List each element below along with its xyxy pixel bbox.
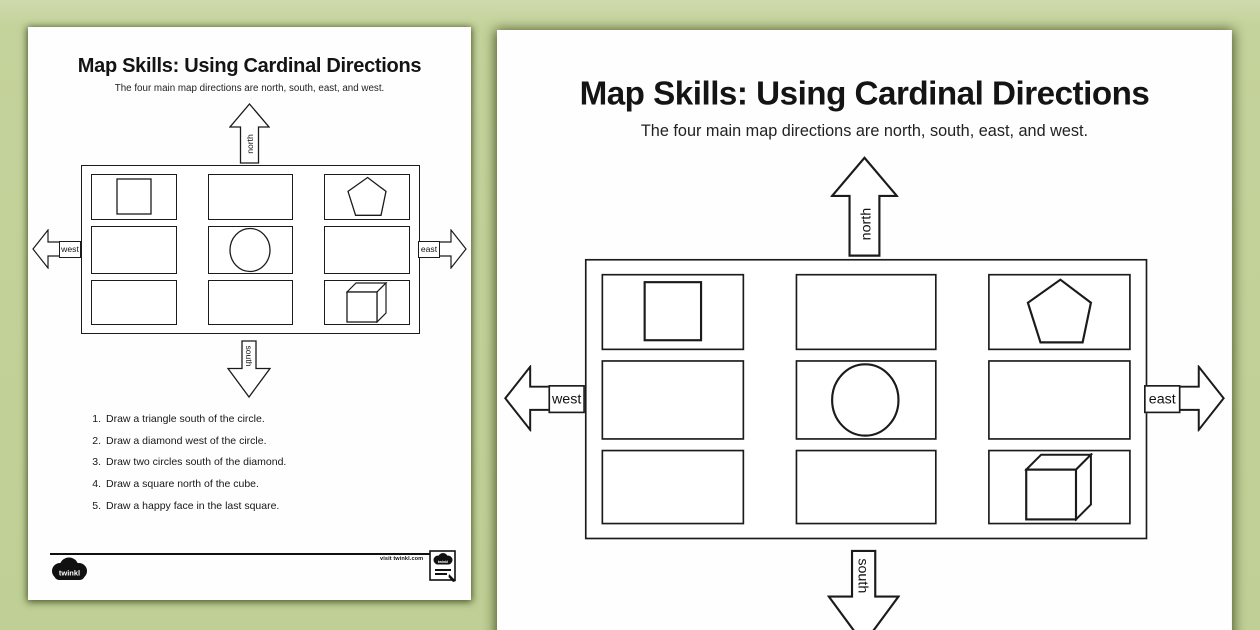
north-arrow: north	[830, 156, 898, 257]
south-arrow: south	[827, 549, 900, 630]
instruction-item-3: 3. Draw two circles south of the diamond…	[88, 456, 438, 469]
footer-divider	[50, 553, 449, 555]
desktop-background: Map Skills: Using Cardinal Directions Th…	[0, 0, 1260, 630]
svg-text:twinkl: twinkl	[438, 560, 448, 564]
instruction-item-2: 2. Draw a diamond west of the circle.	[88, 435, 438, 448]
east-arrow-label: east	[418, 241, 440, 258]
page-subtitle: The four main map directions are north, …	[28, 83, 471, 94]
south-arrow: south	[227, 340, 271, 398]
instruction-number: 5.	[88, 500, 101, 513]
twinkl-quality-badge-icon: twinkl	[429, 550, 458, 584]
cube-shape-icon	[1025, 453, 1095, 521]
svg-text:twinkl: twinkl	[59, 569, 80, 578]
map-cell-r2c1	[602, 359, 744, 439]
map-cell-r3c2	[795, 449, 937, 524]
map-grid	[585, 259, 1147, 539]
cube-shape-icon	[346, 282, 388, 323]
map-cell-r2c1	[91, 226, 177, 274]
east-arrow-label: east	[1144, 384, 1180, 412]
map-cell-r3c2	[208, 280, 294, 326]
north-arrow-label: north	[245, 135, 255, 155]
instruction-item-1: 1. Draw a triangle south of the circle.	[88, 413, 438, 426]
map-cell-r3c1	[602, 449, 744, 524]
instructions-list: 1. Draw a triangle south of the circle. …	[88, 413, 438, 522]
map-cell-r3c3	[324, 280, 410, 326]
map-cell-r1c3	[989, 274, 1131, 349]
west-arrow-label: west	[548, 384, 584, 412]
visit-twinkl-link: visit twinkl.com	[380, 556, 423, 562]
map-cell-r1c2	[208, 174, 294, 220]
map-cell-r2c3	[324, 226, 410, 274]
instruction-text: Draw two circles south of the diamond.	[106, 456, 286, 469]
west-arrow: west	[32, 229, 81, 269]
north-arrow-label: north	[856, 209, 873, 242]
worksheet-page: Map Skills: Using Cardinal Directions Th…	[28, 27, 471, 600]
north-arrow: north	[229, 103, 270, 164]
instruction-item-4: 4. Draw a square north of the cube.	[88, 478, 438, 491]
instruction-text: Draw a happy face in the last square.	[106, 500, 279, 513]
map-cell-r3c3	[989, 449, 1131, 524]
twinkl-logo-icon: twinkl	[50, 556, 90, 583]
west-arrow: west	[504, 365, 585, 431]
south-arrow-label: south	[244, 345, 254, 366]
circle-shape-icon	[830, 361, 903, 437]
east-arrow: east	[1144, 365, 1225, 431]
worksheet-page-zoomed: Map Skills: Using Cardinal Directions Th…	[497, 30, 1232, 630]
instruction-item-5: 5. Draw a happy face in the last square.	[88, 500, 438, 513]
pentagon-shape-icon	[344, 175, 390, 218]
page-title: Map Skills: Using Cardinal Directions	[28, 55, 471, 78]
map-cell-r3c1	[91, 280, 177, 326]
map-cell-r2c3	[989, 359, 1131, 439]
map-grid	[81, 165, 420, 334]
square-shape-icon	[643, 281, 703, 342]
instruction-number: 3.	[88, 456, 101, 469]
pentagon-shape-icon	[1022, 276, 1098, 347]
instruction-text: Draw a square north of the cube.	[106, 478, 259, 491]
instruction-number: 4.	[88, 478, 101, 491]
map-cell-r1c3	[324, 174, 410, 220]
instruction-text: Draw a diamond west of the circle.	[106, 435, 266, 448]
map-cell-r2c2	[795, 359, 937, 439]
instruction-text: Draw a triangle south of the circle.	[106, 413, 265, 426]
instruction-number: 2.	[88, 435, 101, 448]
map-cell-r1c1	[602, 274, 744, 349]
map-cell-r1c2	[795, 274, 937, 349]
square-shape-icon	[116, 178, 152, 215]
map-cell-r1c1	[91, 174, 177, 220]
page-subtitle: The four main map directions are north, …	[497, 123, 1232, 141]
west-arrow-label: west	[59, 241, 81, 258]
instruction-number: 1.	[88, 413, 101, 426]
circle-shape-icon	[228, 227, 272, 273]
page-title: Map Skills: Using Cardinal Directions	[497, 76, 1232, 114]
south-arrow-label: south	[855, 558, 872, 593]
map-cell-r2c2	[208, 226, 294, 274]
east-arrow: east	[418, 229, 467, 269]
